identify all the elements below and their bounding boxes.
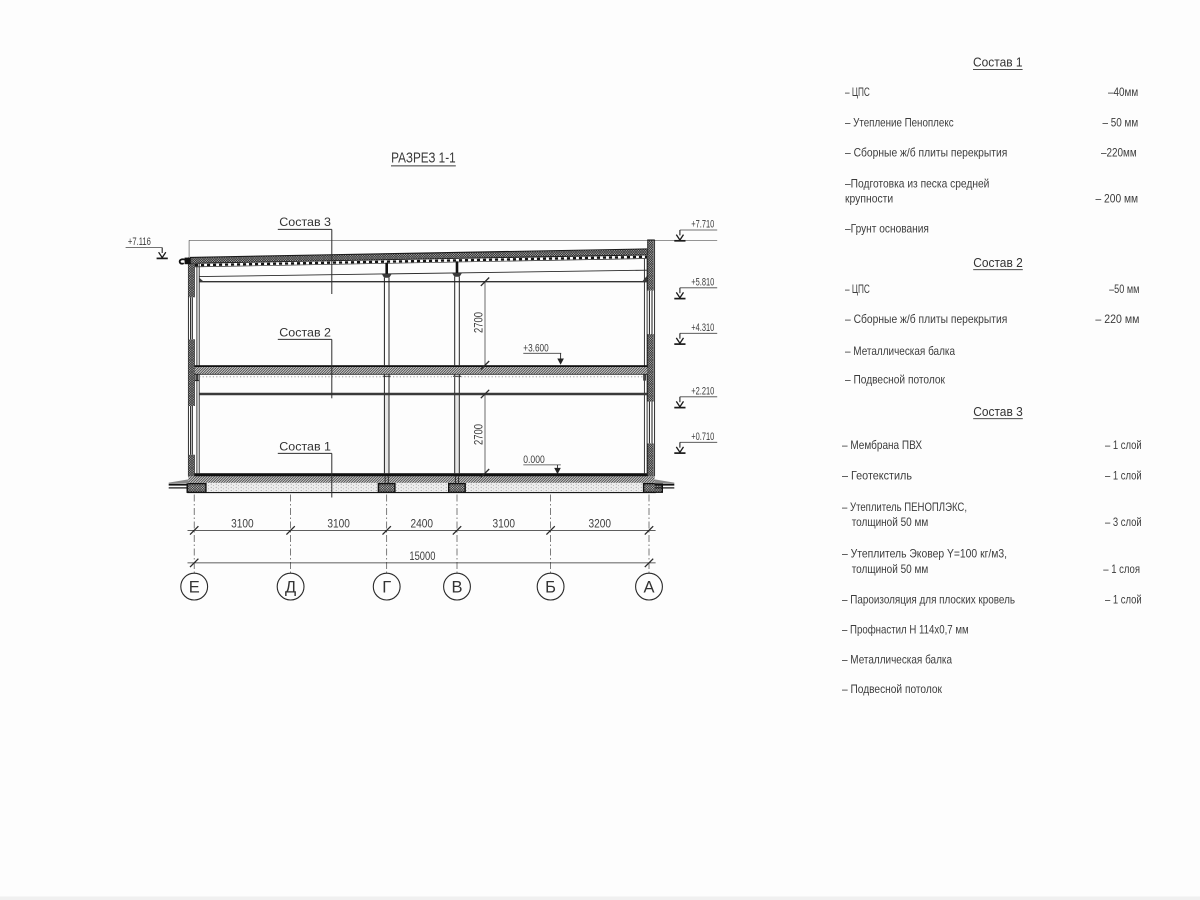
- svg-text:3100: 3100: [493, 519, 516, 531]
- svg-text:Состав 2: Состав 2: [973, 255, 1023, 270]
- svg-text:– Подвесной потолок: – Подвесной потолок: [845, 373, 946, 387]
- svg-text:– 1 слой: – 1 слой: [1105, 438, 1142, 452]
- svg-text:Состав 1: Состав 1: [279, 440, 331, 454]
- svg-text:– Металлическая балка: – Металлическая балка: [842, 653, 952, 667]
- svg-text:– ЦПС: – ЦПС: [845, 282, 870, 296]
- svg-text:3100: 3100: [327, 519, 350, 531]
- svg-text:– Профнастил Н 114х0,7 мм: – Профнастил Н 114х0,7 мм: [842, 623, 969, 637]
- svg-text:+4.310: +4.310: [691, 322, 714, 334]
- svg-text:Е: Е: [189, 578, 200, 596]
- svg-text:–220мм: –220мм: [1101, 146, 1137, 160]
- svg-text:– 200 мм: – 200 мм: [1096, 191, 1139, 205]
- svg-text:2700: 2700: [474, 312, 486, 333]
- svg-text:А: А: [643, 578, 654, 596]
- svg-text:3200: 3200: [589, 519, 612, 531]
- svg-text:Г: Г: [382, 578, 391, 596]
- svg-text:2400: 2400: [411, 519, 434, 531]
- svg-text:толщиной 50 мм: толщиной 50 мм: [852, 515, 929, 529]
- svg-text:Состав 3: Состав 3: [973, 404, 1023, 419]
- svg-text:+7.116: +7.116: [128, 236, 151, 248]
- svg-text:–40мм: –40мм: [1108, 85, 1138, 99]
- svg-text:– 1 слой: – 1 слой: [1105, 469, 1142, 483]
- svg-text:– Пароизоляция для плоских кро: – Пароизоляция для плоских кровель: [842, 593, 1015, 607]
- svg-text:– Сборные ж/б плиты перекрытия: – Сборные ж/б плиты перекрытия: [845, 146, 1007, 160]
- svg-text:– Металлическая балка: – Металлическая балка: [845, 344, 955, 358]
- svg-text:+7.710: +7.710: [691, 219, 714, 231]
- svg-text:– Сборные ж/б плиты перекрытия: – Сборные ж/б плиты перекрытия: [845, 312, 1007, 326]
- svg-text:– Геотекстиль: – Геотекстиль: [842, 469, 912, 483]
- svg-text:крупности: крупности: [845, 191, 893, 205]
- svg-text:Состав 3: Состав 3: [279, 215, 331, 229]
- svg-text:15000: 15000: [409, 551, 435, 563]
- svg-text:Д: Д: [285, 578, 296, 596]
- svg-text:0.000: 0.000: [523, 454, 545, 466]
- svg-text:+5.810: +5.810: [691, 276, 714, 288]
- svg-text:+3.600: +3.600: [523, 342, 548, 354]
- svg-text:– Утеплитель ПЕНОПЛЭКС,: – Утеплитель ПЕНОПЛЭКС,: [842, 500, 967, 514]
- svg-text:– 3 слой: – 3 слой: [1105, 515, 1142, 529]
- svg-text:В: В: [451, 578, 462, 596]
- svg-text:– ЦПС: – ЦПС: [845, 85, 870, 99]
- svg-text:Состав 1: Состав 1: [973, 55, 1023, 70]
- svg-text:+0.710: +0.710: [691, 431, 714, 443]
- svg-text:–50 мм: –50 мм: [1109, 282, 1139, 296]
- svg-text:Б: Б: [545, 578, 556, 596]
- svg-text:РАЗРЕЗ 1-1: РАЗРЕЗ 1-1: [391, 151, 456, 167]
- svg-text:– Утепление Пеноплекс: – Утепление Пеноплекс: [845, 115, 954, 129]
- svg-text:– 50 мм: – 50 мм: [1103, 115, 1139, 129]
- svg-text:– 1 слоя: – 1 слоя: [1103, 562, 1140, 576]
- svg-text:– Подвесной потолок: – Подвесной потолок: [842, 682, 943, 696]
- svg-text:– Мембрана ПВХ: – Мембрана ПВХ: [842, 438, 922, 452]
- svg-text:– 220 мм: – 220 мм: [1095, 312, 1139, 326]
- svg-text:–Подготовка из песка средней: –Подготовка из песка средней: [845, 176, 989, 190]
- svg-text:Состав 2: Состав 2: [279, 326, 331, 340]
- svg-text:– 1 слой: – 1 слой: [1105, 593, 1142, 607]
- svg-text:2700: 2700: [474, 424, 486, 445]
- svg-text:+2.210: +2.210: [691, 385, 714, 397]
- svg-text:3100: 3100: [231, 519, 254, 531]
- svg-text:толщиной 50 мм: толщиной 50 мм: [852, 562, 929, 576]
- svg-text:–Грунт основания: –Грунт основания: [845, 222, 929, 236]
- svg-text:– Утеплитель Эковер Y=100 кг/м: – Утеплитель Эковер Y=100 кг/м3,: [842, 547, 1007, 561]
